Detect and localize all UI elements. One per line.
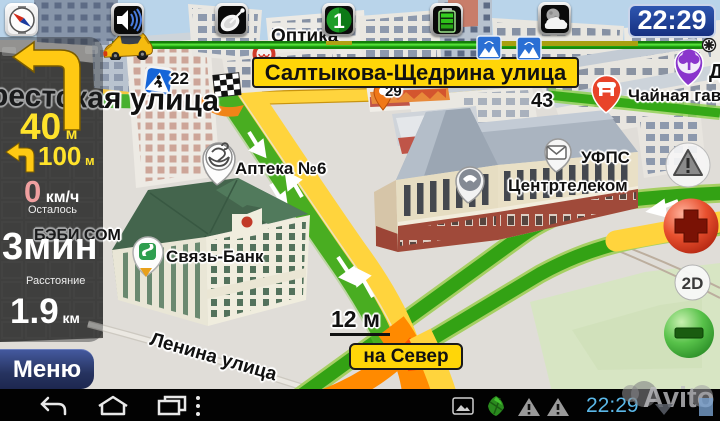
svg-text:2D: 2D <box>682 274 704 293</box>
svg-text:1: 1 <box>333 10 345 33</box>
